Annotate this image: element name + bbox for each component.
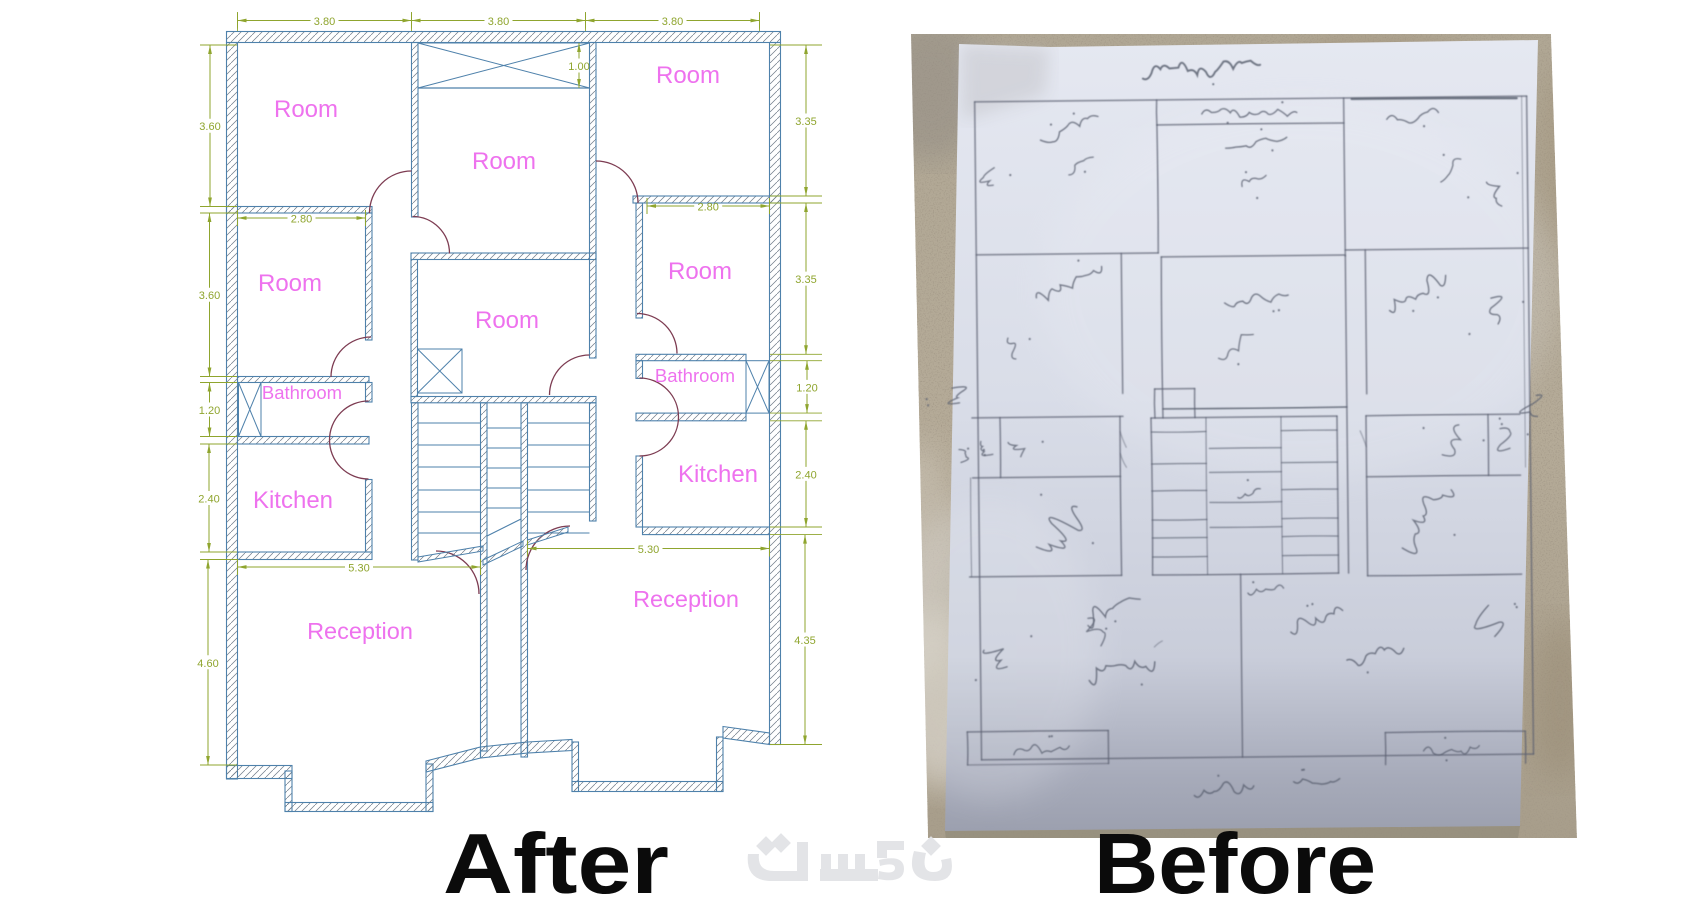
svg-text:2.40: 2.40 [198, 494, 219, 506]
svg-text:Room: Room [475, 307, 539, 334]
svg-text:Before: Before [1094, 817, 1376, 900]
svg-text:Bathroom: Bathroom [655, 365, 735, 386]
svg-text:2.80: 2.80 [697, 202, 718, 214]
svg-text:3.35: 3.35 [795, 274, 816, 286]
svg-text:Bathroom: Bathroom [262, 382, 342, 403]
svg-text:Kitchen: Kitchen [678, 461, 758, 488]
svg-text:1.20: 1.20 [796, 382, 817, 394]
svg-text:2.40: 2.40 [795, 469, 816, 481]
svg-text:Kitchen: Kitchen [253, 487, 333, 514]
svg-text:3.80: 3.80 [662, 16, 683, 28]
svg-text:Room: Room [668, 258, 732, 285]
svg-text:3.80: 3.80 [488, 16, 509, 28]
svg-text:Room: Room [656, 62, 720, 89]
svg-text:1.00: 1.00 [568, 61, 589, 73]
svg-text:1.20: 1.20 [199, 405, 220, 417]
svg-text:3.35: 3.35 [795, 116, 816, 128]
svg-text:2.80: 2.80 [291, 214, 312, 226]
svg-text:4.60: 4.60 [197, 658, 218, 670]
svg-text:5.30: 5.30 [638, 544, 659, 556]
svg-text:3.60: 3.60 [199, 121, 220, 133]
svg-text:Room: Room [258, 270, 322, 297]
svg-text:Reception: Reception [633, 586, 739, 612]
svg-text:3.80: 3.80 [314, 16, 335, 28]
svg-text:Reception: Reception [307, 618, 413, 644]
svg-text:Room: Room [274, 96, 338, 123]
svg-text:5.30: 5.30 [348, 563, 369, 575]
svg-text:3.60: 3.60 [199, 290, 220, 302]
svg-text:Room: Room [472, 148, 536, 175]
svg-text:4.35: 4.35 [794, 635, 815, 647]
svg-text:After: After [443, 817, 669, 900]
